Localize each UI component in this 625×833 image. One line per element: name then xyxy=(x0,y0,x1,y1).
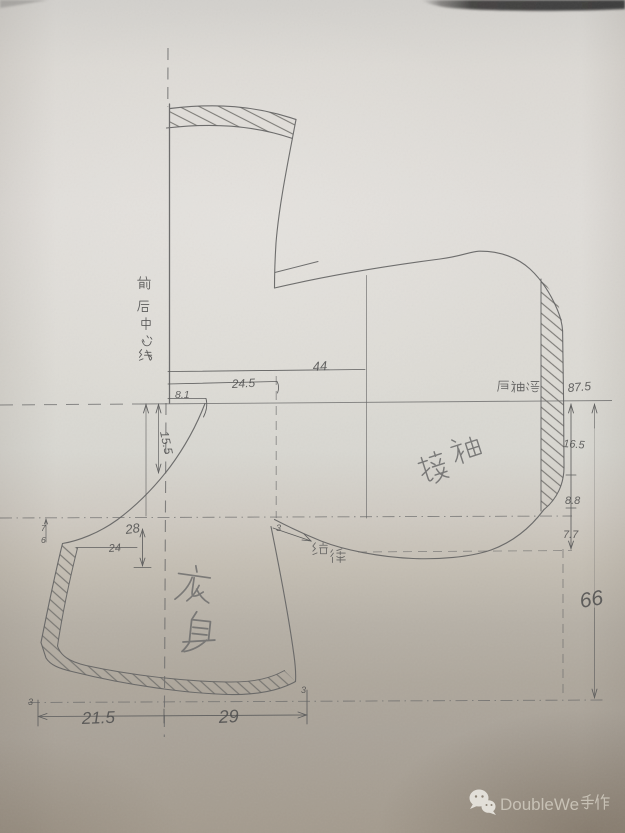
svg-text:24: 24 xyxy=(107,542,121,555)
svg-text:16.5: 16.5 xyxy=(563,438,586,452)
svg-text:DoubleWe: DoubleWe xyxy=(500,795,579,814)
svg-text:8.8: 8.8 xyxy=(565,495,581,507)
svg-text:24.5: 24.5 xyxy=(230,376,255,391)
svg-text:3: 3 xyxy=(301,685,306,695)
svg-text:44: 44 xyxy=(312,358,327,374)
svg-text:7: 7 xyxy=(41,523,46,533)
svg-text:29: 29 xyxy=(217,706,239,727)
svg-text:7.7: 7.7 xyxy=(563,529,579,541)
svg-text:66: 66 xyxy=(578,586,605,613)
svg-text:3: 3 xyxy=(276,523,281,533)
svg-text:21.5: 21.5 xyxy=(80,708,115,728)
svg-text:28: 28 xyxy=(123,520,141,537)
svg-text:8.1: 8.1 xyxy=(175,389,190,401)
svg-text:3: 3 xyxy=(28,697,33,707)
svg-text:87.5: 87.5 xyxy=(567,379,592,395)
svg-text:6: 6 xyxy=(41,535,46,545)
